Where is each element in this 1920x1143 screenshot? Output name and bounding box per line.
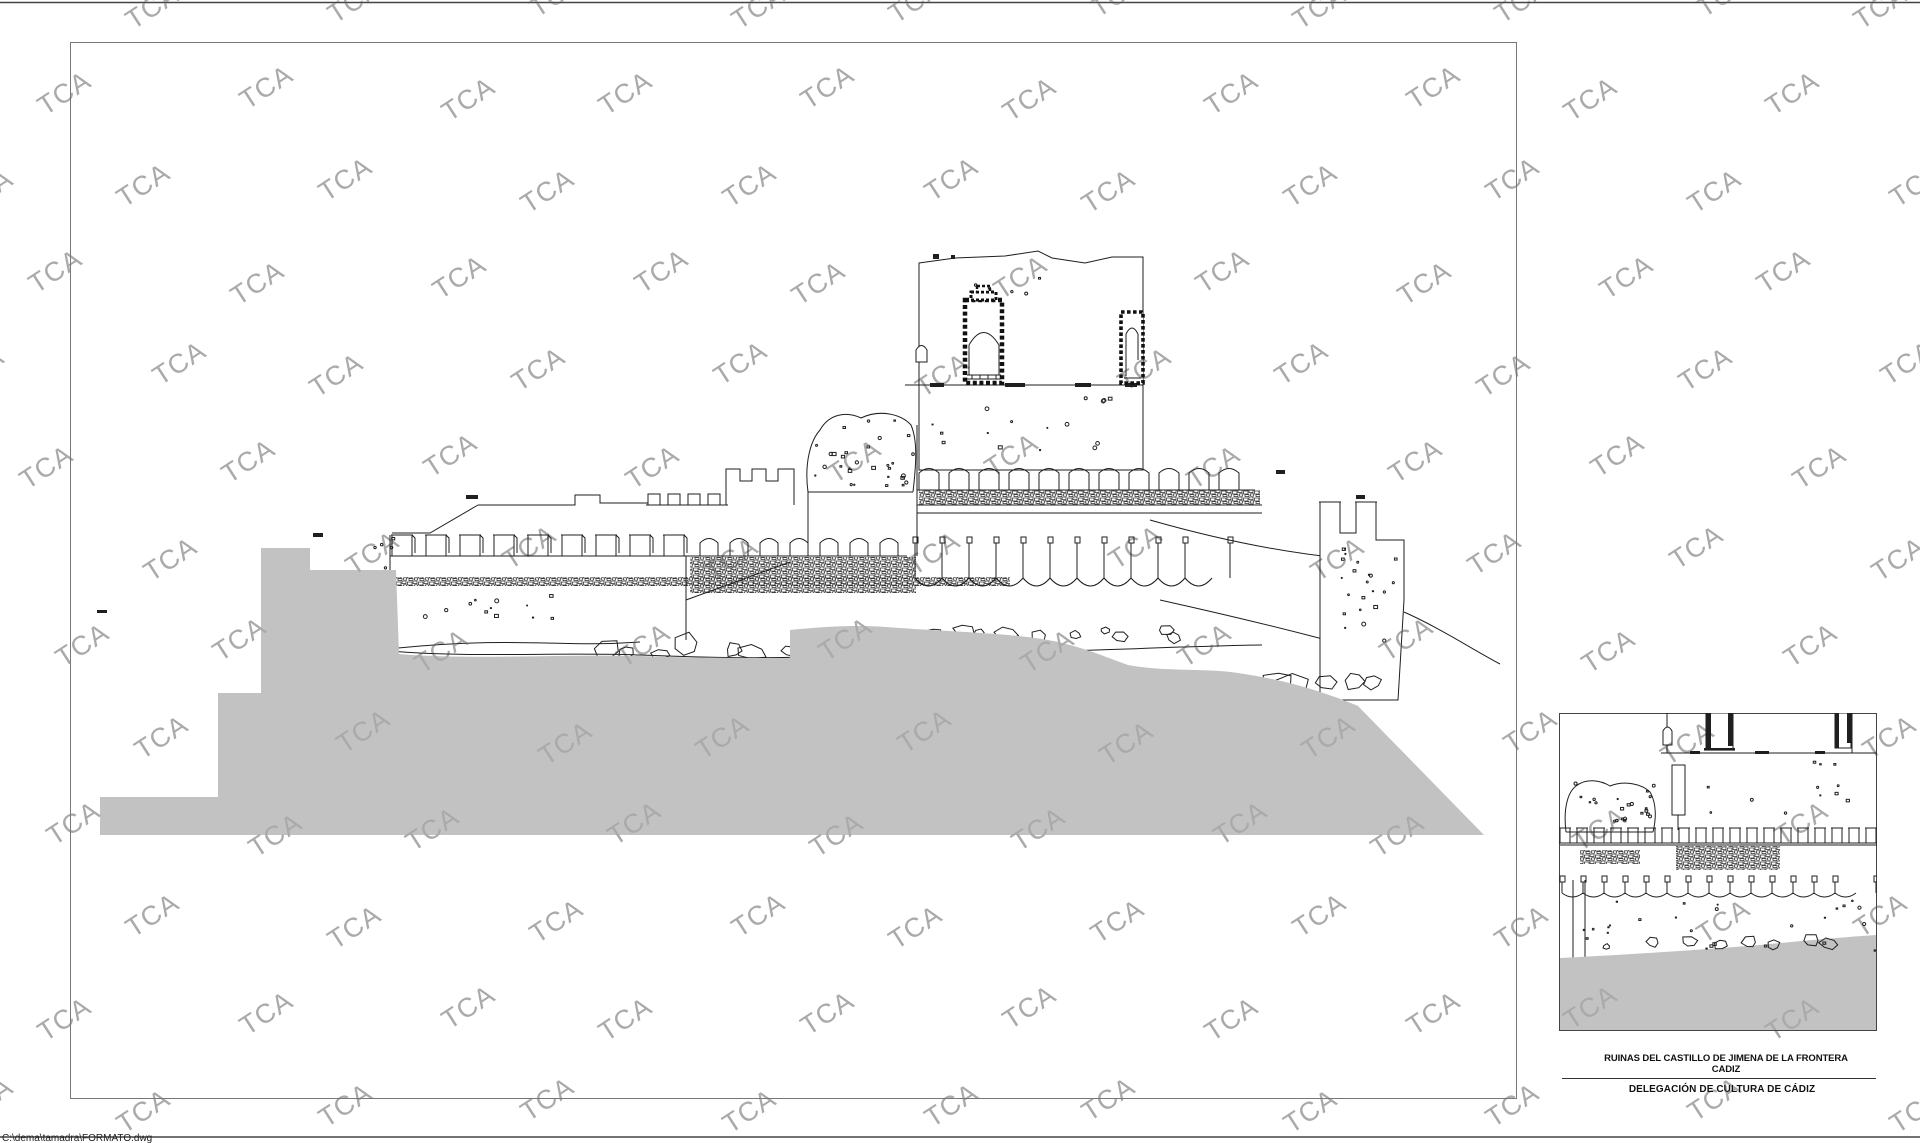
inset-detail-box: [1558, 713, 1879, 1031]
right-tower: [1320, 502, 1404, 700]
title-line3: DELEGACIÓN DE CULTURA DE CÁDIZ: [1629, 1082, 1815, 1095]
file-path-label: C:\dema\tamadra\FORMATO.dwg: [2, 1133, 152, 1143]
title-block: RUINAS DEL CASTILLO DE JIMENA DE LA FRON…: [1562, 1053, 1876, 1095]
keep-tower: [905, 251, 1143, 470]
title-line2: CADIZ: [1712, 1064, 1741, 1075]
keep-right-niche: [1121, 312, 1143, 383]
keep-central-niche: [965, 286, 1002, 383]
keep-left-door-arch: [916, 346, 927, 363]
cad-sheet: RUINAS DEL CASTILLO DE JIMENA DE LA FRON…: [0, 0, 1920, 1143]
castle-elevation-drawing: RUINAS DEL CASTILLO DE JIMENA DE LA FRON…: [0, 0, 1920, 1143]
title-line1: RUINAS DEL CASTILLO DE JIMENA DE LA FRON…: [1604, 1053, 1848, 1064]
